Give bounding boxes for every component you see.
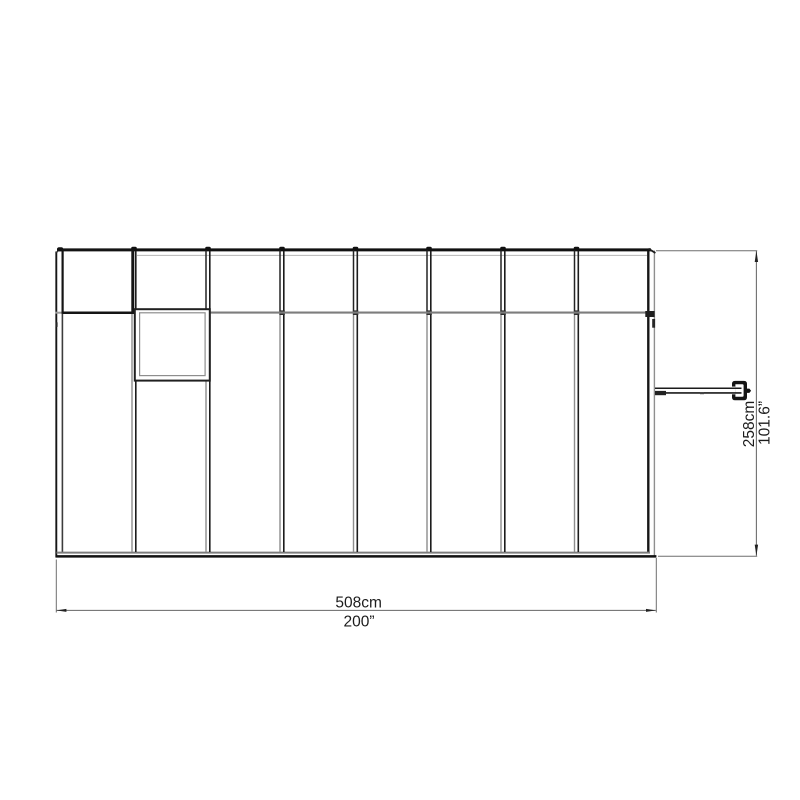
svg-text:508cm: 508cm [335, 595, 382, 612]
svg-text:101.6”: 101.6” [757, 401, 774, 445]
svg-text:200”: 200” [343, 613, 374, 630]
svg-text:258cm: 258cm [741, 401, 758, 448]
